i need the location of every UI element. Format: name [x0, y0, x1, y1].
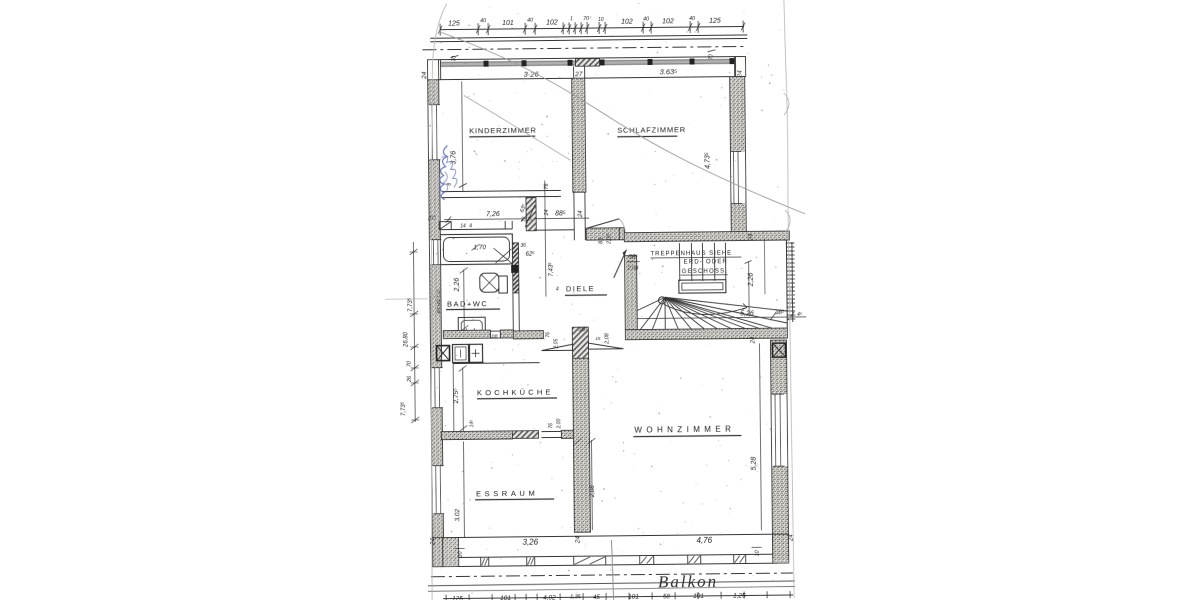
svg-text:26: 26 [407, 375, 413, 383]
svg-text:5,26: 5,26 [740, 310, 754, 317]
svg-text:10: 10 [755, 549, 761, 556]
svg-text:1: 1 [570, 16, 573, 22]
svg-text:10: 10 [458, 550, 464, 557]
svg-text:3,02: 3,02 [454, 508, 461, 521]
svg-text:4,76: 4,76 [696, 536, 712, 545]
svg-text:KOCHKÜCHE: KOCHKÜCHE [477, 387, 554, 397]
svg-text:24: 24 [544, 209, 550, 216]
svg-text:Balkon: Balkon [658, 572, 718, 592]
svg-text:24: 24 [748, 233, 754, 241]
svg-text:DIELE: DIELE [566, 284, 595, 293]
svg-text:40: 40 [689, 16, 696, 22]
svg-text:38⁵: 38⁵ [775, 309, 785, 316]
svg-text:3,76: 3,76 [450, 151, 457, 165]
svg-text:4,73⁵: 4,73⁵ [704, 152, 711, 169]
svg-text:101: 101 [502, 20, 514, 27]
svg-text:125: 125 [452, 595, 463, 600]
svg-text:BAD+WC: BAD+WC [447, 299, 488, 308]
svg-text:2,26: 2,26 [454, 278, 461, 293]
svg-text:5,28: 5,28 [751, 457, 758, 471]
svg-text:3,26: 3,26 [522, 538, 538, 547]
svg-text:45: 45 [593, 595, 600, 600]
svg-text:36⁵: 36⁵ [578, 326, 588, 333]
svg-text:24: 24 [578, 210, 584, 218]
svg-text:40: 40 [527, 18, 534, 24]
svg-text:76: 76 [548, 423, 554, 429]
svg-text:KINDERZIMMER: KINDERZIMMER [469, 126, 537, 136]
svg-text:58: 58 [663, 594, 670, 600]
svg-text:2,08: 2,08 [590, 485, 596, 498]
svg-text:2,05: 2,05 [520, 217, 533, 223]
svg-text:SCHLAFZIMMER: SCHLAFZIMMER [617, 125, 686, 135]
svg-text:83: 83 [598, 237, 604, 244]
svg-text:4: 4 [469, 223, 472, 229]
svg-text:4,02: 4,02 [543, 594, 556, 600]
svg-text:76: 76 [544, 182, 550, 189]
svg-text:15: 15 [595, 336, 601, 341]
svg-text:24: 24 [421, 71, 428, 80]
svg-text:7,43⁵: 7,43⁵ [548, 262, 555, 277]
svg-text:4: 4 [556, 286, 559, 292]
svg-text:102: 102 [621, 19, 633, 26]
svg-text:2,00: 2,00 [556, 418, 562, 429]
svg-text:ERD- ODER: ERD- ODER [684, 259, 729, 265]
svg-text:2,08: 2,08 [627, 266, 640, 272]
svg-text:88⁵: 88⁵ [555, 210, 566, 217]
svg-text:7,26: 7,26 [486, 211, 500, 218]
svg-text:2,26: 2,26 [748, 273, 755, 288]
svg-text:70: 70 [407, 360, 413, 367]
svg-text:14⁵: 14⁵ [469, 420, 475, 428]
svg-text:7,73⁵: 7,73⁵ [407, 297, 414, 312]
svg-text:2,08: 2,08 [606, 234, 612, 245]
svg-text:BR.HÖ 7,10: BR.HÖ 7,10 [435, 289, 441, 314]
svg-text:101: 101 [628, 594, 639, 600]
svg-text:2,08: 2,08 [604, 332, 610, 345]
svg-text:1,25: 1,25 [733, 592, 746, 599]
svg-text:38⁵: 38⁵ [629, 254, 639, 261]
svg-text:GESCHOSS.: GESCHOSS. [682, 269, 729, 275]
svg-text:26,80: 26,80 [403, 331, 409, 348]
svg-text:7,73⁵: 7,73⁵ [400, 401, 407, 416]
svg-text:101: 101 [500, 595, 511, 600]
svg-text:125: 125 [709, 18, 721, 25]
svg-text:24: 24 [750, 336, 756, 344]
svg-text:76: 76 [545, 332, 551, 338]
svg-text:102: 102 [662, 18, 674, 25]
svg-text:2,05: 2,05 [553, 338, 559, 349]
svg-text:1,35: 1,35 [570, 594, 582, 600]
svg-text:36: 36 [520, 243, 526, 249]
svg-text:DB: DB [491, 334, 497, 339]
svg-text:14: 14 [460, 223, 466, 229]
svg-text:WOHNZIMMER: WOHNZIMMER [634, 425, 735, 435]
svg-text:102: 102 [546, 19, 558, 26]
svg-text:101: 101 [693, 593, 704, 600]
svg-text:4⁵: 4⁵ [797, 312, 802, 318]
svg-text:10: 10 [598, 17, 604, 23]
svg-text:3.63⁵: 3.63⁵ [660, 67, 678, 76]
svg-text:70: 70 [708, 54, 714, 60]
svg-text:40: 40 [643, 16, 650, 22]
svg-text:125: 125 [448, 20, 460, 27]
svg-text:24: 24 [430, 537, 436, 545]
svg-text:27: 27 [574, 71, 583, 78]
svg-text:62⁵: 62⁵ [525, 251, 535, 258]
svg-text:70ⁱ: 70ⁱ [583, 15, 591, 22]
svg-text:24: 24 [574, 536, 581, 545]
